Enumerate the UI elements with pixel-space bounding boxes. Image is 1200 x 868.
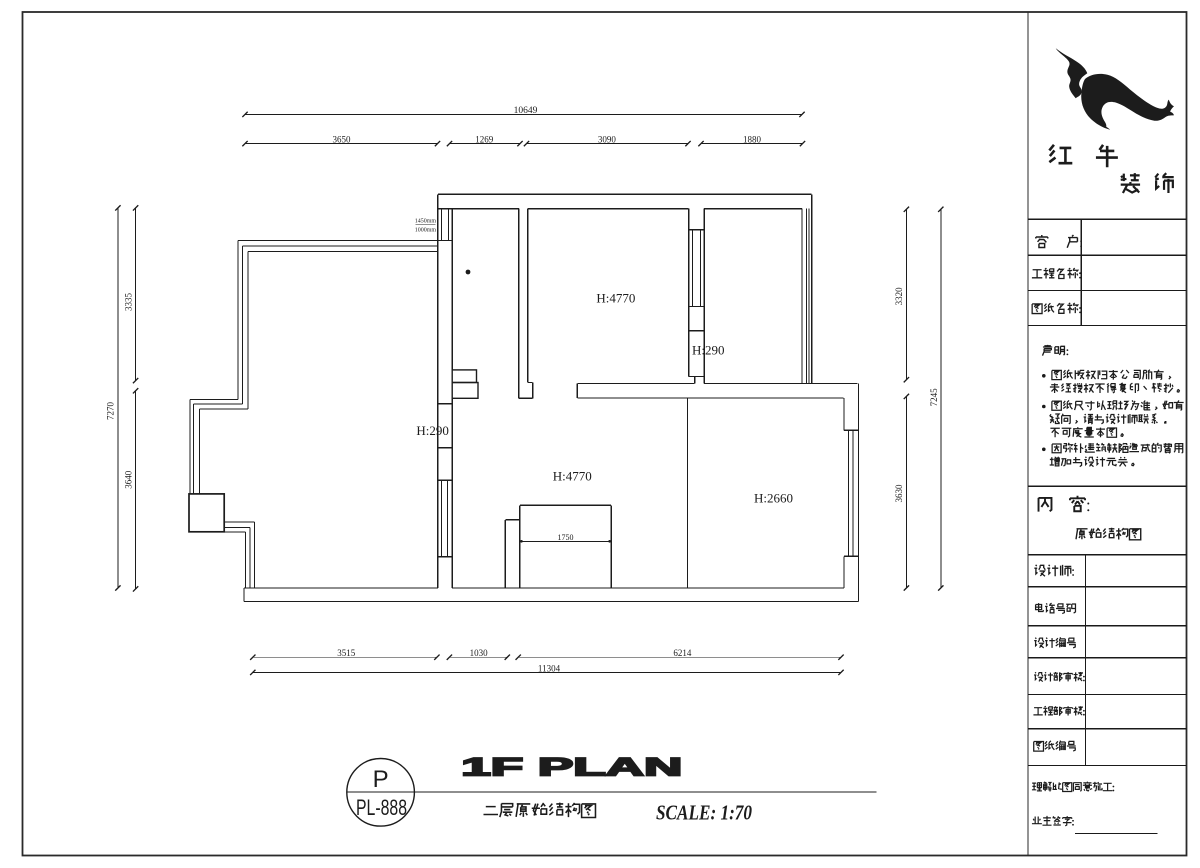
svg-text:7245: 7245 <box>929 388 939 407</box>
svg-text:3650: 3650 <box>333 135 352 145</box>
svg-text:PL-888: PL-888 <box>356 795 407 820</box>
svg-text:1F PLAN: 1F PLAN <box>461 754 682 782</box>
svg-text:3630: 3630 <box>894 484 904 503</box>
svg-text:6214: 6214 <box>673 648 692 658</box>
svg-text:1450mm: 1450mm <box>415 219 437 225</box>
svg-text:1750: 1750 <box>558 533 574 542</box>
svg-text:3640: 3640 <box>124 470 134 489</box>
svg-text:H:4770: H:4770 <box>553 468 592 483</box>
svg-text:H:2660: H:2660 <box>754 491 793 506</box>
svg-text:11304: 11304 <box>538 663 561 673</box>
svg-text:H:290: H:290 <box>692 343 725 358</box>
svg-text:P: P <box>373 766 389 793</box>
svg-text:3090: 3090 <box>598 135 617 145</box>
svg-text:1269: 1269 <box>475 135 494 145</box>
svg-text:SCALE: 1:70: SCALE: 1:70 <box>656 801 752 825</box>
svg-text:3320: 3320 <box>894 287 904 306</box>
svg-text:1030: 1030 <box>470 648 489 658</box>
svg-text:1000mm: 1000mm <box>415 227 437 233</box>
svg-text:10649: 10649 <box>514 106 538 116</box>
svg-text:1880: 1880 <box>743 135 762 145</box>
svg-text:H:4770: H:4770 <box>596 291 635 306</box>
svg-text:H:290: H:290 <box>416 423 449 438</box>
svg-text:3335: 3335 <box>124 293 134 312</box>
svg-text:3515: 3515 <box>337 648 356 658</box>
svg-text:7270: 7270 <box>106 402 116 421</box>
